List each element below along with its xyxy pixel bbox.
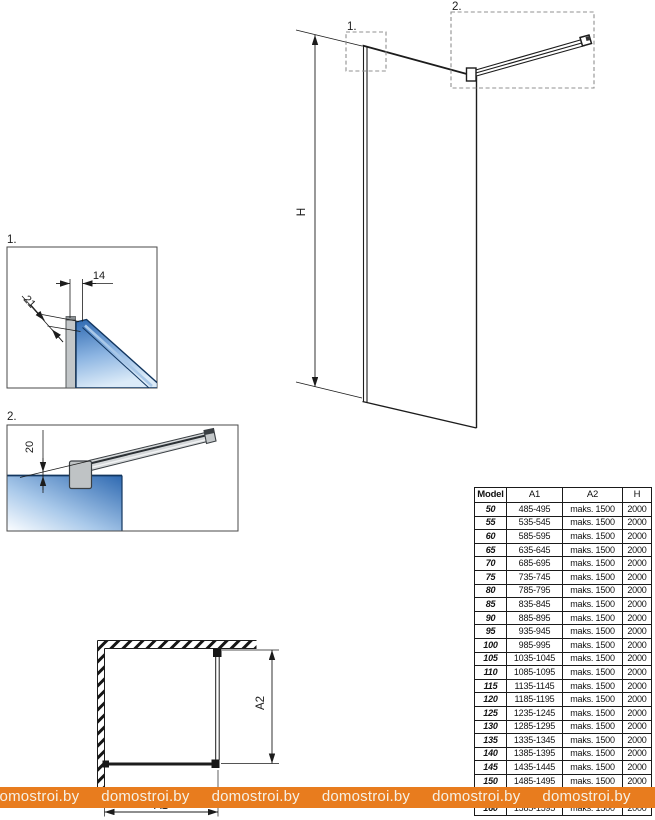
- model-cell: 50: [475, 503, 507, 517]
- detail-2-label: 2.: [7, 411, 17, 423]
- dim-20-label: 20: [24, 441, 36, 453]
- value-cell: 1435-1445: [507, 761, 563, 775]
- callout-box-1: [346, 32, 386, 71]
- model-cell: 150: [475, 774, 507, 788]
- table-row: 55535-545maks. 15002000: [475, 516, 652, 530]
- model-cell: 60: [475, 530, 507, 544]
- table-row: 50485-495maks. 15002000: [475, 503, 652, 517]
- model-cell: 100: [475, 638, 507, 652]
- value-cell: maks. 1500: [563, 720, 623, 734]
- model-cell: 75: [475, 570, 507, 584]
- model-cell: 145: [475, 761, 507, 775]
- value-cell: maks. 1500: [563, 706, 623, 720]
- value-cell: 1485-1495: [507, 774, 563, 788]
- value-cell: maks. 1500: [563, 598, 623, 612]
- value-cell: maks. 1500: [563, 625, 623, 639]
- table-row: 1501485-1495maks. 15002000: [475, 774, 652, 788]
- table-row: 70685-695maks. 15002000: [475, 557, 652, 571]
- table-row: 100985-995maks. 15002000: [475, 638, 652, 652]
- model-cell: 105: [475, 652, 507, 666]
- table-row: 1201185-1195maks. 15002000: [475, 693, 652, 707]
- glass-top-section: [8, 476, 123, 531]
- spec-table: Model A1 A2 H 50485-495maks. 15002000555…: [474, 487, 652, 816]
- panel-end-cap-plan: [212, 760, 220, 769]
- bar-end-cap: [580, 35, 592, 46]
- table-row: 75735-745maks. 15002000: [475, 570, 652, 584]
- value-cell: 1285-1295: [507, 720, 563, 734]
- value-cell: 935-945: [507, 625, 563, 639]
- table-row: 1151135-1145maks. 15002000: [475, 679, 652, 693]
- value-cell: 2000: [623, 652, 652, 666]
- value-cell: 835-845: [507, 598, 563, 612]
- value-cell: maks. 1500: [563, 679, 623, 693]
- watermark-text: domostroi.by: [322, 787, 410, 807]
- value-cell: 485-495: [507, 503, 563, 517]
- model-cell: 55: [475, 516, 507, 530]
- detail-2-view: 2. 20: [7, 411, 238, 531]
- value-cell: 535-545: [507, 516, 563, 530]
- wall-top: [98, 641, 257, 649]
- value-cell: maks. 1500: [563, 774, 623, 788]
- value-cell: 2000: [623, 503, 652, 517]
- value-cell: maks. 1500: [563, 503, 623, 517]
- model-cell: 95: [475, 625, 507, 639]
- wall-profile-plan: [103, 761, 110, 768]
- value-cell: 2000: [623, 611, 652, 625]
- model-cell: 120: [475, 693, 507, 707]
- value-cell: maks. 1500: [563, 638, 623, 652]
- wall-left: [98, 641, 105, 792]
- value-cell: 2000: [623, 625, 652, 639]
- value-cell: 2000: [623, 706, 652, 720]
- table-row: 90885-895maks. 15002000: [475, 611, 652, 625]
- value-cell: maks. 1500: [563, 761, 623, 775]
- value-cell: 985-995: [507, 638, 563, 652]
- value-cell: maks. 1500: [563, 516, 623, 530]
- table-row: 1301285-1295maks. 15002000: [475, 720, 652, 734]
- model-cell: 70: [475, 557, 507, 571]
- watermark-text: domostroi.by: [212, 787, 300, 807]
- table-row: 65635-645maks. 15002000: [475, 543, 652, 557]
- value-cell: 2000: [623, 761, 652, 775]
- value-cell: 2000: [623, 516, 652, 530]
- technical-drawing-page: H 1. 2. 1.: [0, 0, 655, 820]
- model-cell: 115: [475, 679, 507, 693]
- dim-a2-label: A2: [255, 696, 267, 710]
- model-cell: 140: [475, 747, 507, 761]
- value-cell: 1135-1145: [507, 679, 563, 693]
- value-cell: 885-895: [507, 611, 563, 625]
- elevation-view: H 1. 2.: [294, 1, 594, 428]
- watermark-bar-inner: domostroi.bydomostroi.bydomostroi.bydomo…: [0, 787, 631, 807]
- table-row: 85835-845maks. 15002000: [475, 598, 652, 612]
- spec-table-header: Model A1 A2 H: [475, 488, 652, 503]
- value-cell: 1085-1095: [507, 666, 563, 680]
- wall-profile: [364, 47, 368, 403]
- header-model: Model: [475, 488, 507, 503]
- support-bar-plan: [213, 649, 222, 760]
- header-h: H: [623, 488, 652, 503]
- value-cell: 735-745: [507, 570, 563, 584]
- value-cell: 785-795: [507, 584, 563, 598]
- value-cell: maks. 1500: [563, 747, 623, 761]
- value-cell: 685-695: [507, 557, 563, 571]
- table-row: 1101085-1095maks. 15002000: [475, 666, 652, 680]
- value-cell: 2000: [623, 557, 652, 571]
- model-cell: 85: [475, 598, 507, 612]
- header-a2: A2: [563, 488, 623, 503]
- table-row: 1251235-1245maks. 15002000: [475, 706, 652, 720]
- table-row: 95935-945maks. 15002000: [475, 625, 652, 639]
- value-cell: 2000: [623, 679, 652, 693]
- value-cell: 2000: [623, 774, 652, 788]
- model-cell: 80: [475, 584, 507, 598]
- glass-panel: [363, 46, 477, 429]
- model-cell: 125: [475, 706, 507, 720]
- value-cell: maks. 1500: [563, 734, 623, 748]
- value-cell: maks. 1500: [563, 652, 623, 666]
- dim-a2: A2: [221, 650, 279, 764]
- value-cell: 2000: [623, 584, 652, 598]
- watermark-text: domostroi.by: [432, 787, 520, 807]
- value-cell: 1385-1395: [507, 747, 563, 761]
- value-cell: 1185-1195: [507, 693, 563, 707]
- value-cell: 2000: [623, 543, 652, 557]
- value-cell: 1235-1245: [507, 706, 563, 720]
- callout-label-2: 2.: [452, 1, 462, 13]
- value-cell: 2000: [623, 747, 652, 761]
- model-cell: 130: [475, 720, 507, 734]
- value-cell: 2000: [623, 693, 652, 707]
- support-bar: [467, 35, 592, 81]
- detail-1-label: 1.: [7, 234, 17, 246]
- model-cell: 135: [475, 734, 507, 748]
- table-row: 60585-595maks. 15002000: [475, 530, 652, 544]
- value-cell: maks. 1500: [563, 557, 623, 571]
- value-cell: 2000: [623, 530, 652, 544]
- callout-label-1: 1.: [347, 21, 357, 33]
- detail-1-view: 1. 14: [7, 234, 158, 388]
- model-cell: 110: [475, 666, 507, 680]
- value-cell: 2000: [623, 598, 652, 612]
- value-cell: 2000: [623, 638, 652, 652]
- value-cell: 635-645: [507, 543, 563, 557]
- value-cell: 585-595: [507, 530, 563, 544]
- table-row: 1351335-1345maks. 15002000: [475, 734, 652, 748]
- spec-table-body: 50485-495maks. 1500200055535-545maks. 15…: [475, 503, 652, 816]
- watermark-text: domostroi.by: [101, 787, 189, 807]
- glass-plan: [103, 760, 220, 769]
- glass-bracket: [467, 68, 477, 81]
- value-cell: 2000: [623, 570, 652, 584]
- value-cell: 2000: [623, 734, 652, 748]
- value-cell: maks. 1500: [563, 611, 623, 625]
- wall-bracket-plan: [213, 649, 222, 657]
- dim-14-label: 14: [93, 270, 105, 282]
- value-cell: 2000: [623, 720, 652, 734]
- h-dimension-label: H: [294, 208, 308, 217]
- value-cell: maks. 1500: [563, 570, 623, 584]
- value-cell: maks. 1500: [563, 666, 623, 680]
- model-cell: 65: [475, 543, 507, 557]
- header-row: Model A1 A2 H: [475, 488, 652, 503]
- table-row: 80785-795maks. 15002000: [475, 584, 652, 598]
- watermark-text: domostroi.by: [542, 787, 630, 807]
- table-row: 1451435-1445maks. 15002000: [475, 761, 652, 775]
- table-row: 1401385-1395maks. 15002000: [475, 747, 652, 761]
- value-cell: 1335-1345: [507, 734, 563, 748]
- h-extension-bottom: [296, 382, 362, 398]
- header-a1: A1: [507, 488, 563, 503]
- value-cell: 1035-1045: [507, 652, 563, 666]
- table-row: 1051035-1045maks. 15002000: [475, 652, 652, 666]
- value-cell: 2000: [623, 666, 652, 680]
- watermark-text: domostroi.by: [0, 787, 79, 807]
- watermark-bar: domostroi.bydomostroi.bydomostroi.bydomo…: [0, 787, 655, 808]
- value-cell: maks. 1500: [563, 584, 623, 598]
- value-cell: maks. 1500: [563, 530, 623, 544]
- value-cell: maks. 1500: [563, 693, 623, 707]
- value-cell: maks. 1500: [563, 543, 623, 557]
- model-cell: 90: [475, 611, 507, 625]
